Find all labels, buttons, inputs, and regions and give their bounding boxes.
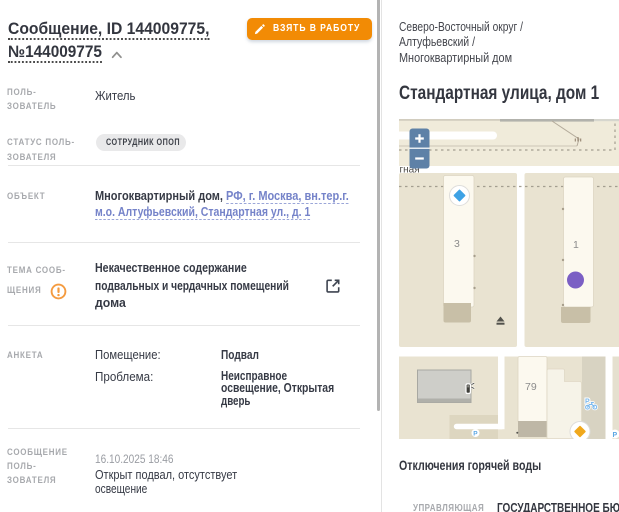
svg-text:3: 3 — [454, 238, 460, 250]
svg-text:P: P — [613, 432, 618, 439]
svg-text:1: 1 — [573, 239, 579, 251]
svg-text:79: 79 — [525, 381, 537, 393]
svg-text:P: P — [473, 431, 478, 438]
